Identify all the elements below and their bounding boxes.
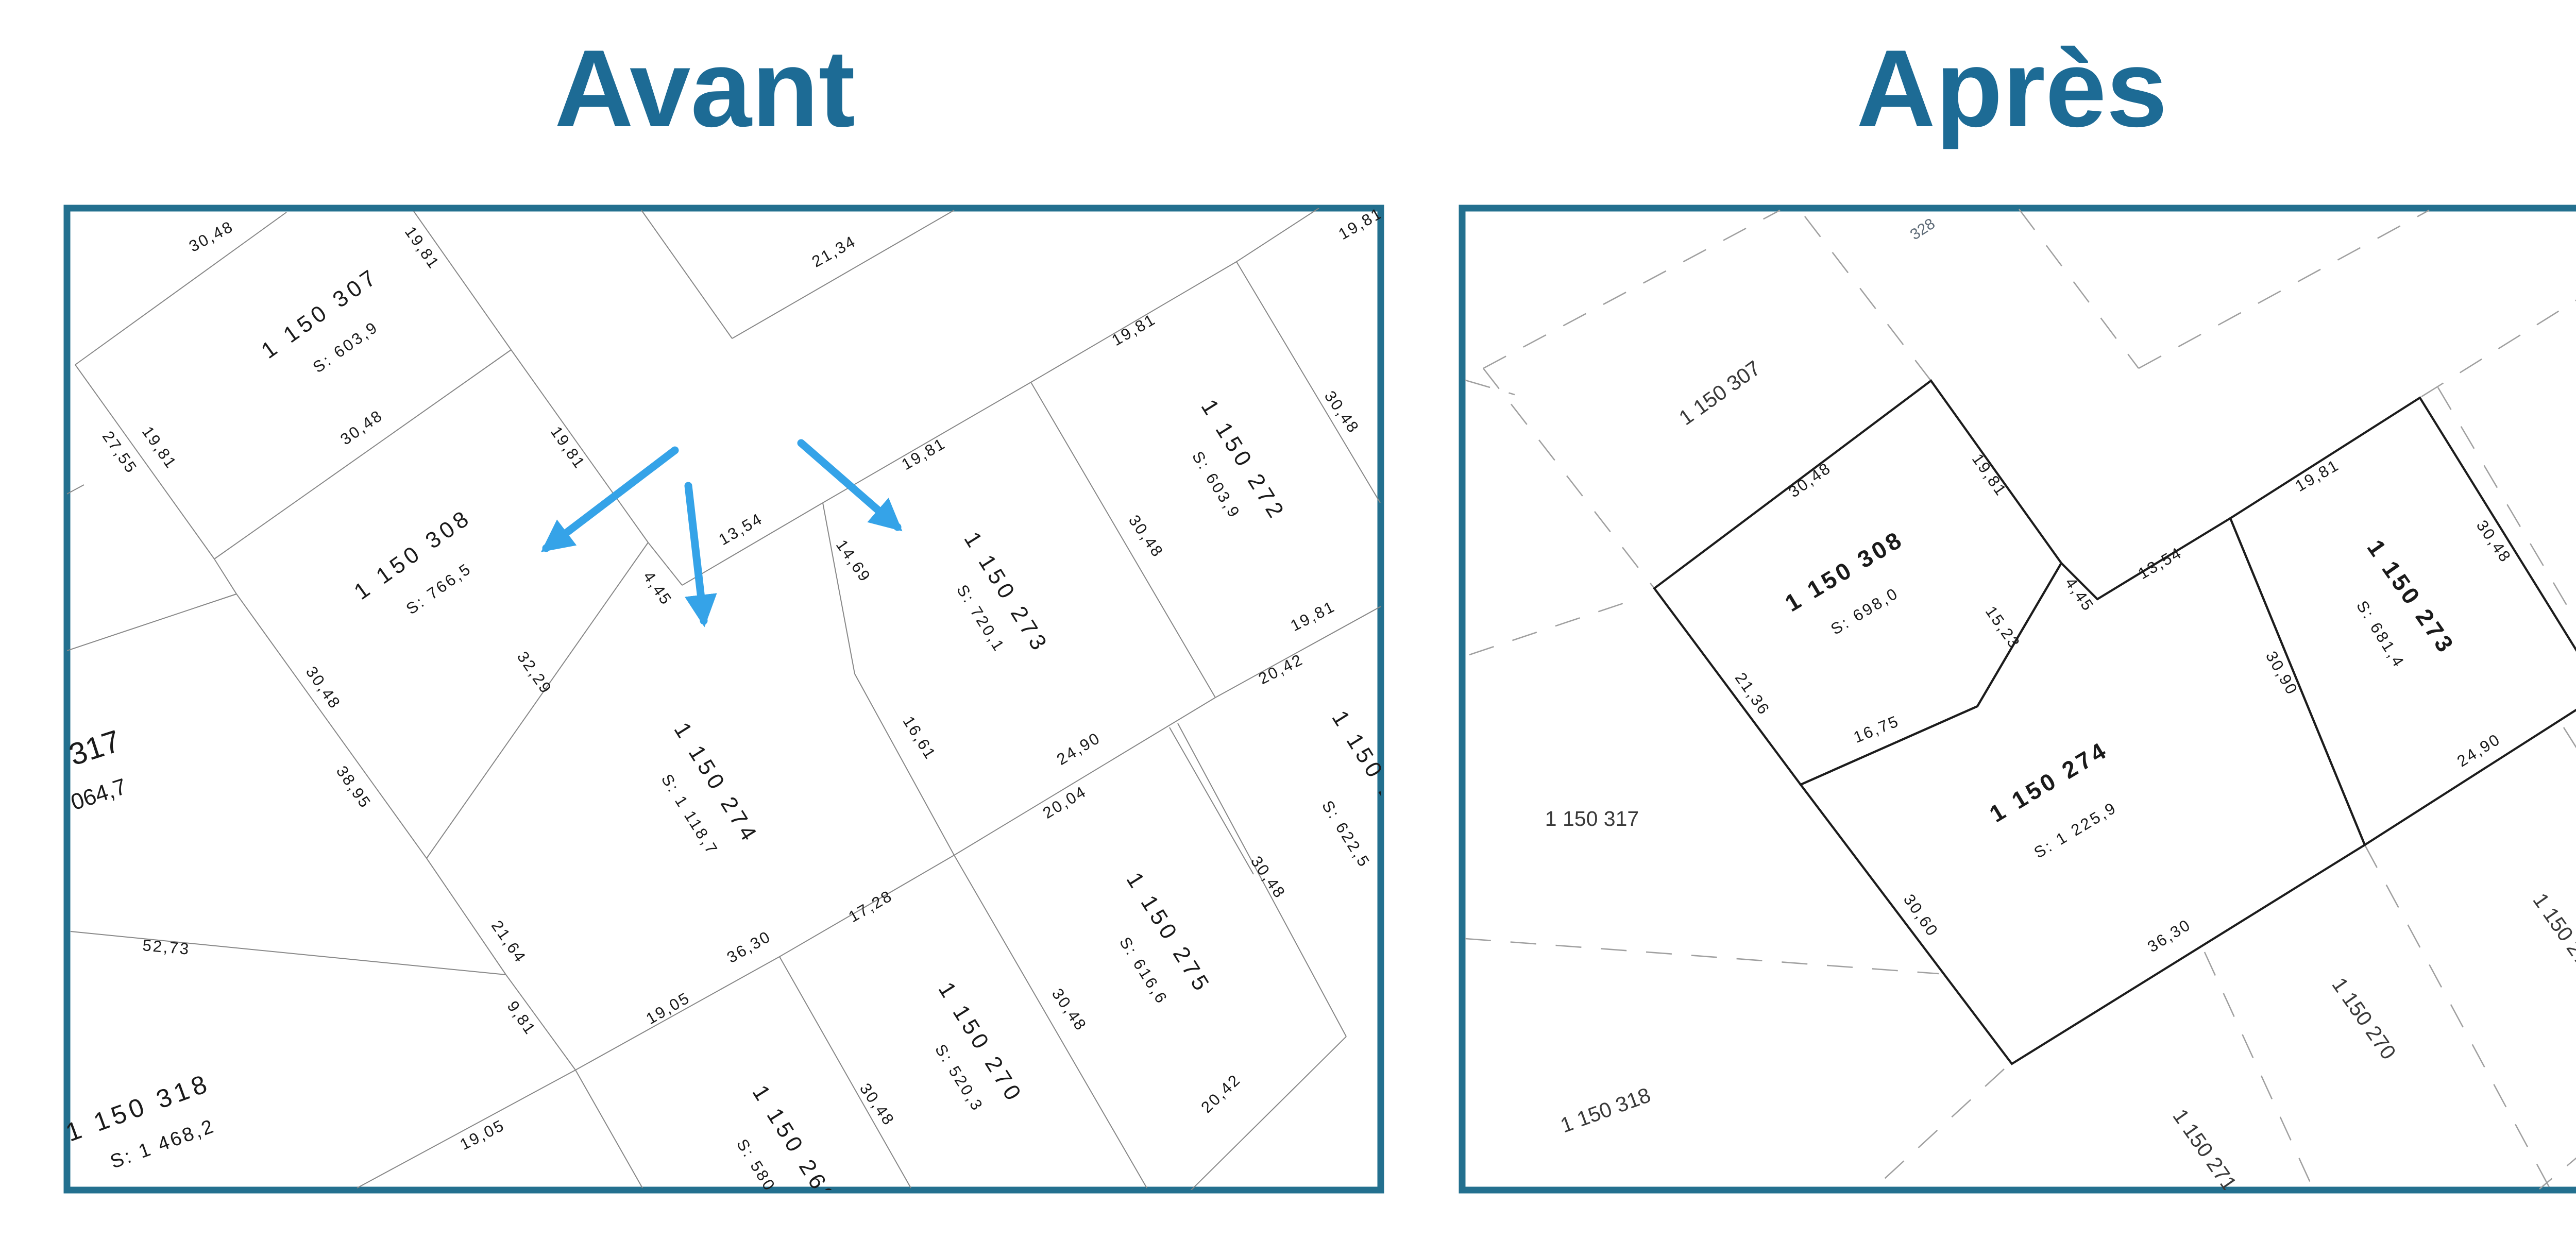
svg-text:30,48: 30,48 — [1321, 387, 1363, 437]
svg-text:27,55: 27,55 — [99, 428, 141, 477]
svg-text:13,54: 13,54 — [716, 510, 766, 549]
svg-text:317: 317 — [65, 723, 125, 772]
svg-text:1 150 308: 1 150 308 — [349, 504, 476, 605]
svg-text:30,48: 30,48 — [1048, 985, 1091, 1034]
svg-text:32,29: 32,29 — [514, 648, 556, 698]
svg-text:30,48: 30,48 — [1247, 853, 1290, 902]
svg-text:30,48: 30,48 — [1785, 459, 1835, 501]
svg-text:9,81: 9,81 — [504, 997, 540, 1038]
svg-text:1 150 307: 1 150 307 — [1674, 356, 1765, 430]
svg-text:Avant: Avant — [554, 27, 855, 150]
svg-text:30,48: 30,48 — [337, 406, 386, 448]
svg-text:21,36: 21,36 — [1732, 669, 1774, 719]
svg-text:1 150 275: 1 150 275 — [1122, 868, 1216, 998]
svg-text:1 150 270: 1 150 270 — [2327, 973, 2400, 1064]
svg-text:30,48: 30,48 — [302, 663, 345, 712]
svg-text:30,60: 30,60 — [1900, 891, 1942, 940]
svg-text:19,05: 19,05 — [457, 1116, 507, 1153]
svg-text:19,81: 19,81 — [401, 223, 444, 273]
svg-text:30,48: 30,48 — [186, 217, 236, 256]
svg-text:19,81: 19,81 — [2292, 456, 2343, 496]
svg-text:30,48: 30,48 — [856, 1080, 899, 1129]
svg-text:52,73: 52,73 — [142, 936, 191, 958]
svg-text:36,30: 36,30 — [2144, 915, 2194, 956]
svg-text:17,28: 17,28 — [845, 887, 896, 926]
svg-text:13,54: 13,54 — [2135, 544, 2185, 583]
svg-text:S: 698,0: S: 698,0 — [1827, 584, 1902, 638]
svg-text:19,81: 19,81 — [139, 423, 181, 472]
svg-text:S: 1 225,9: S: 1 225,9 — [2031, 798, 2120, 861]
svg-text:19,81: 19,81 — [1287, 597, 1338, 635]
svg-text:21,34: 21,34 — [809, 232, 859, 270]
svg-text:S: 622,5: S: 622,5 — [1318, 797, 1374, 872]
svg-text:20,42: 20,42 — [1197, 1071, 1244, 1116]
svg-text:1 150 307: 1 150 307 — [257, 263, 383, 364]
svg-text:19,05: 19,05 — [643, 989, 693, 1028]
svg-text:36,30: 36,30 — [724, 927, 774, 967]
svg-text:19,81: 19,81 — [1109, 310, 1159, 350]
svg-text:19,81: 19,81 — [899, 434, 949, 474]
svg-text:064,7: 064,7 — [68, 774, 130, 816]
svg-text:14,69: 14,69 — [833, 536, 875, 586]
svg-text:30,90: 30,90 — [2262, 648, 2302, 699]
svg-text:24,90: 24,90 — [1054, 728, 1104, 769]
svg-text:1 150 317: 1 150 317 — [1545, 807, 1639, 830]
svg-text:1 150 275: 1 150 275 — [2528, 889, 2576, 979]
svg-text:16,75: 16,75 — [1851, 712, 1902, 746]
svg-text:24,90: 24,90 — [2454, 730, 2504, 771]
svg-text:15,23: 15,23 — [1982, 603, 2024, 652]
svg-text:1 150 271: 1 150 271 — [2168, 1105, 2241, 1195]
svg-text:328: 328 — [1907, 215, 1938, 244]
svg-text:1 150 274: 1 150 274 — [669, 718, 764, 848]
svg-text:21,64: 21,64 — [488, 917, 530, 966]
svg-text:Après: Après — [1856, 27, 2167, 150]
svg-text:19,81: 19,81 — [1969, 450, 2011, 500]
svg-text:38,95: 38,95 — [333, 762, 375, 812]
svg-text:S: 681,4: S: 681,4 — [2353, 598, 2409, 672]
svg-text:16,61: 16,61 — [900, 713, 940, 763]
svg-text:1 150 318: 1 150 318 — [1557, 1083, 1654, 1138]
svg-text:20,42: 20,42 — [1256, 650, 1306, 688]
svg-text:4,45: 4,45 — [640, 568, 676, 608]
